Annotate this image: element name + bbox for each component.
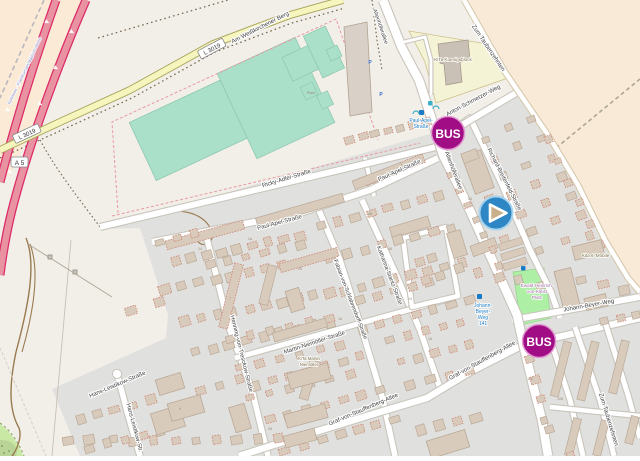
svg-text:24: 24	[408, 297, 412, 301]
svg-text:BUS: BUS	[435, 127, 460, 141]
svg-text:2a: 2a	[248, 237, 252, 241]
svg-text:Platz: Platz	[307, 91, 315, 95]
svg-text:46: 46	[368, 212, 372, 216]
svg-text:25: 25	[298, 267, 302, 271]
svg-text:28: 28	[268, 427, 272, 431]
svg-text:54: 54	[468, 197, 472, 201]
svg-text:Ewald-Heinrich-: Ewald-Heinrich-	[521, 283, 554, 288]
svg-text:48: 48	[388, 247, 392, 251]
svg-text:1b: 1b	[338, 317, 342, 321]
svg-text:7: 7	[229, 297, 231, 301]
svg-text:Straße: Straße	[413, 124, 428, 130]
svg-text:141: 141	[479, 321, 488, 327]
svg-text:von-Kleist: von-Kleist	[527, 289, 548, 294]
svg-text:14: 14	[198, 247, 202, 251]
svg-text:KiTa Koenigsblock: KiTa Koenigsblock	[434, 57, 472, 62]
svg-text:BUS: BUS	[526, 335, 551, 349]
svg-text:Niemöller: Niemöller	[300, 362, 319, 367]
svg-text:Kita 6 'Mobile': Kita 6 'Mobile'	[582, 253, 610, 258]
svg-text:4: 4	[179, 407, 181, 411]
svg-text:KiTa Martin: KiTa Martin	[298, 356, 321, 361]
svg-text:108: 108	[557, 397, 563, 401]
svg-text:Platz: Platz	[532, 295, 543, 300]
svg-text:A 5: A 5	[15, 160, 25, 167]
svg-text:112: 112	[527, 377, 533, 381]
svg-text:18: 18	[428, 337, 432, 341]
